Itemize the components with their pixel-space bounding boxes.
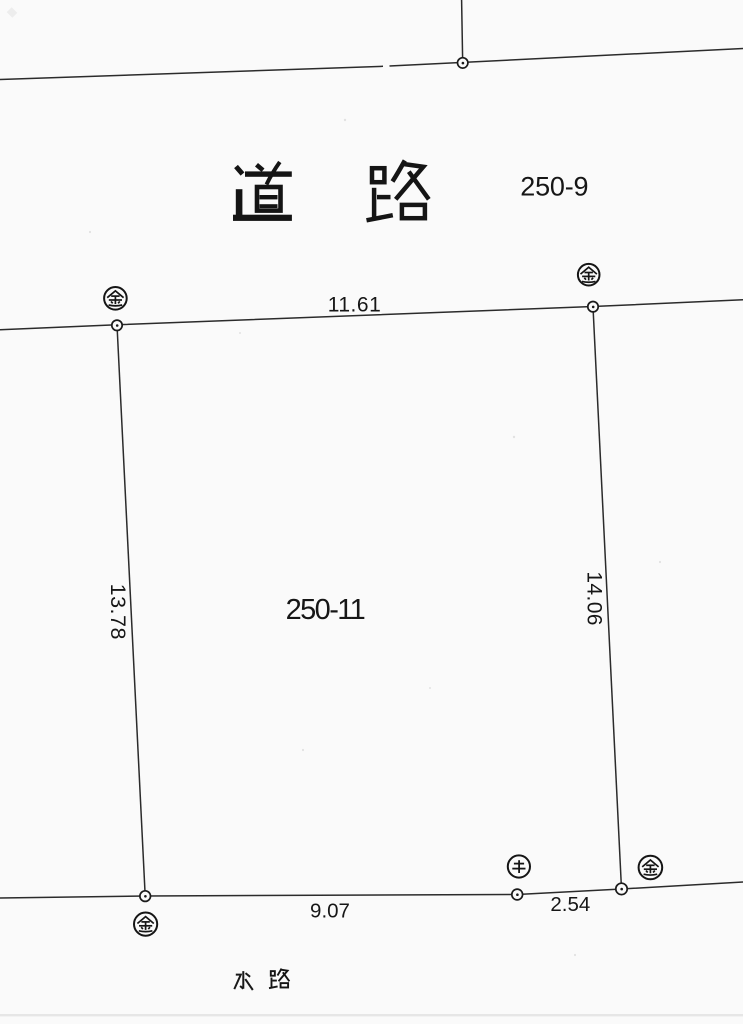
svg-text:2.54: 2.54 (550, 893, 590, 916)
svg-text:13.78: 13.78 (106, 584, 130, 640)
svg-text:250-11: 250-11 (286, 594, 365, 626)
svg-text:11.61: 11.61 (328, 293, 382, 316)
svg-text:250-9: 250-9 (520, 171, 588, 201)
svg-text:9.07: 9.07 (310, 899, 350, 922)
svg-text:14.06: 14.06 (583, 571, 606, 626)
